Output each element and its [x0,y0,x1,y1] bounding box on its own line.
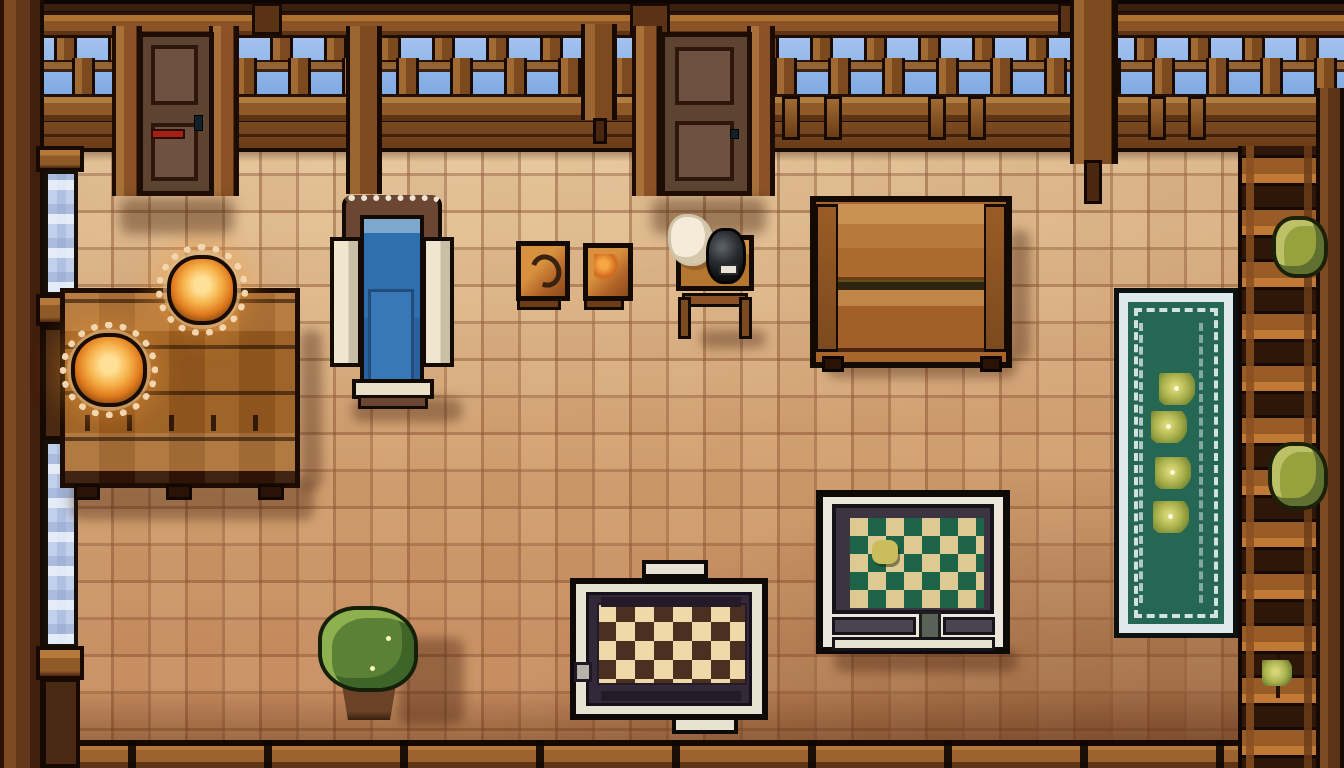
armchair-cushion [368,289,414,385]
bench-leg [822,356,844,372]
armchair-arm-right [422,237,454,367]
hanging-knob [928,96,946,140]
plant-sparkle [370,666,375,671]
door-panel [675,121,734,181]
bench-leg [980,356,1002,372]
bottom-wall-seams [0,740,1344,768]
door-frame-post [632,26,662,196]
rug-flower [1159,373,1195,405]
checkered-rug-pattern [597,603,747,685]
post-pendant [593,118,607,144]
potted-plant[interactable] [320,610,424,724]
lamp-1[interactable] [156,244,248,336]
rug-flower [1153,501,1189,533]
lamp-flame-glow [167,255,237,325]
side-table-leg [739,297,752,339]
armchair-base [358,395,428,409]
right-wall-post [1316,88,1344,768]
bench-seat [838,290,984,352]
door-panel [675,47,734,105]
crate-stand [584,298,624,310]
rug-flower [1151,411,1187,443]
armchair[interactable] [330,195,456,407]
game-board-table[interactable] [816,490,1010,654]
hanging-knob [824,96,842,140]
game-piece[interactable] [872,540,898,564]
green-runner-rug[interactable] [1114,288,1238,638]
checkered-rug-tab [672,716,738,734]
lamp-flame-glow [71,333,147,407]
table-foot [74,484,100,500]
rug-flower [1155,457,1191,489]
game-scene [0,0,1344,768]
window-upper [44,170,78,296]
door-shadow [120,198,234,234]
door-handle [194,115,203,131]
knob-post [581,24,617,120]
checkered-rug-bar [601,691,741,701]
table-shadow-side [300,330,322,490]
door-red-latch [151,129,185,139]
crate-1[interactable] [516,241,570,301]
game-board-surface [850,518,984,608]
checkered-rug-chip [574,662,592,682]
table-foot [166,484,192,500]
window-glass [48,174,74,292]
shelf-rail [1246,146,1254,768]
beam-junction [252,3,282,35]
window-sill [36,646,84,680]
lamp-2[interactable] [60,322,158,418]
hanging-knob [968,96,986,140]
shelf-bush-lower[interactable] [1272,446,1324,506]
bench-post [815,204,839,352]
game-board-drawer[interactable] [943,617,995,635]
checkered-rug-frame [586,592,752,706]
game-board-drawer[interactable] [832,617,916,635]
top-wall [0,0,1344,152]
shelf-bush-upper[interactable] [1276,220,1324,274]
hanging-knob [782,96,800,140]
plant-sparkle [386,636,391,641]
bench-backrest [838,204,984,280]
hanging-knob [1148,96,1166,140]
door-panel [151,45,199,105]
armchair-arm-left [330,237,362,367]
flower-bloom [1262,660,1292,686]
window-sill [36,146,84,172]
wall-pier [42,678,80,768]
crate-stand [517,298,561,310]
support-post-tall [1070,0,1118,164]
kettle-label [719,264,738,275]
bench-post [983,204,1007,352]
hanging-knob [1188,96,1206,140]
plant-leaves [322,610,414,688]
door-handle [730,129,739,139]
checkered-rug-tab [642,560,708,578]
door-center[interactable] [660,32,752,196]
corner-flower[interactable] [1258,644,1304,708]
post-pendant [1084,160,1102,204]
checkered-rug[interactable] [570,578,768,720]
bench-seam [838,280,984,290]
game-board-foot [832,637,995,651]
crate-2[interactable] [583,243,633,301]
door-left[interactable] [138,32,214,196]
checkered-rug-bar [601,597,741,607]
armchair-seat [360,215,424,393]
bottom-wall [0,740,1344,768]
game-board-frame [832,504,994,614]
kettle-pot[interactable] [706,228,746,284]
table-foot [258,484,284,500]
support-post [346,26,382,194]
wooden-bench[interactable] [810,196,1012,368]
side-table-leg [678,297,691,339]
